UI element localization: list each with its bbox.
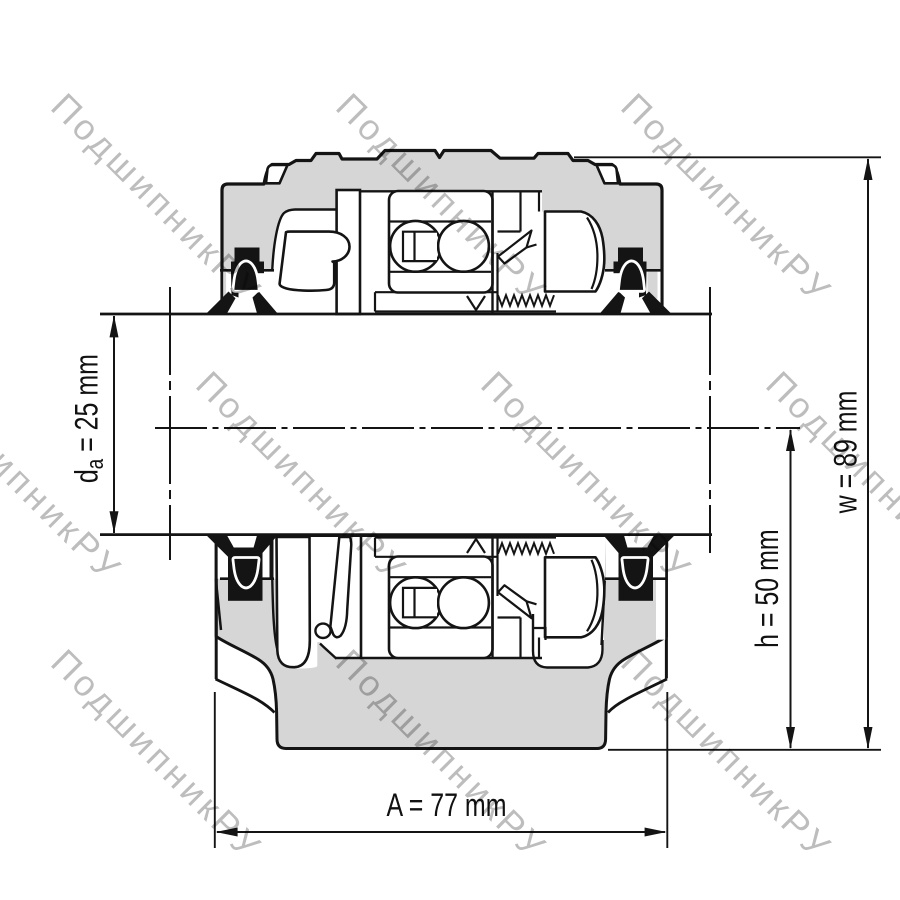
svg-text:ПодшипникРУ: ПодшипникРУ: [0, 363, 131, 590]
svg-text:ПодшипникРУ: ПодшипникРУ: [43, 641, 270, 868]
svg-text:da = 25 mm: da = 25 mm: [70, 354, 109, 483]
svg-text:h = 50 mm: h = 50 mm: [750, 529, 786, 648]
